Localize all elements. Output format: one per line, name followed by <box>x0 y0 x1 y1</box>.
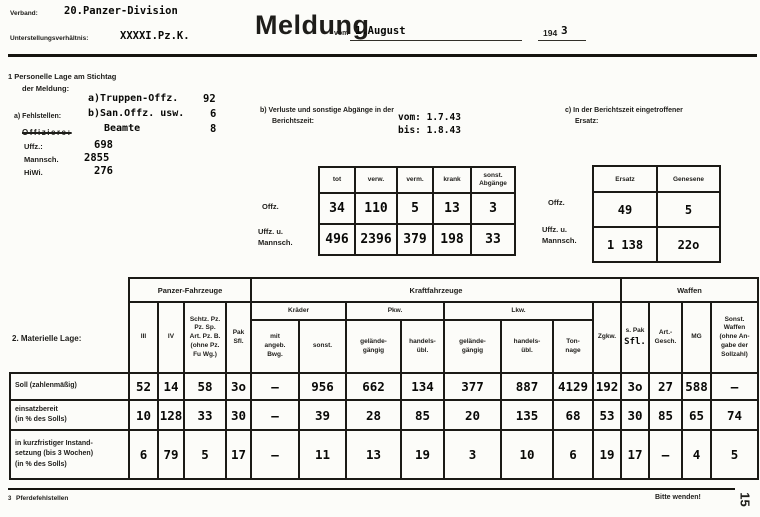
einsatz-zgkw: 53 <box>593 400 621 430</box>
entry-truppen-offz-label: a)Truppen-Offz. <box>88 93 178 104</box>
losses-offz-tot: 34 <box>319 193 355 224</box>
einsatz-sonst-waffen: 74 <box>711 400 758 430</box>
material-col-pak-sfl: Pak Sfl. <box>226 302 251 373</box>
uffz-value: 698 <box>94 139 113 151</box>
instand-kraeder-mit: – <box>251 430 299 479</box>
einsatz-lkw-han: 135 <box>501 400 553 430</box>
losses-row2-label: Uffz. u. Mannsch. <box>258 226 293 249</box>
einsatz-mg: 65 <box>682 400 711 430</box>
einsatz-art: 85 <box>649 400 682 430</box>
document-page: Verband: 20.Panzer-Division Unterstellun… <box>0 0 760 517</box>
ersatz-mannsch-ersatz: 1 138 <box>593 227 657 262</box>
ersatz-table: Ersatz Genesene 49 5 1 138 22o <box>592 165 721 263</box>
soll-kraeder-sonst: 956 <box>299 373 346 400</box>
einsatz-tonnage: 68 <box>553 400 593 430</box>
einsatz-pkw-gel: 28 <box>346 400 401 430</box>
material-row-einsatzbereit-label: einsatzbereit (in % des Solls) <box>10 400 129 430</box>
soll-tonnage: 4129 <box>553 373 593 400</box>
hiwi-label: HiWi. <box>24 168 43 177</box>
material-col-lkw-handels: handels- übl. <box>501 320 553 373</box>
losses-offz-sonst: 3 <box>471 193 515 224</box>
material-row-instandsetzung-label: in kurzfristiger Instand- setzung (bis 3… <box>10 430 129 479</box>
material-table: 2. Materielle Lage: Panzer-Fahrzeuge Kra… <box>9 277 759 480</box>
vom-label: vom <box>334 30 348 37</box>
material-col-pkw-gelaende: gelände- gängig <box>346 320 401 373</box>
losses-heading-line2: Berichtszeit: <box>272 118 314 125</box>
verband-label: Verband: <box>10 10 38 17</box>
soll-pkw-han: 134 <box>401 373 444 400</box>
instand-lkw-gel: 3 <box>444 430 501 479</box>
material-sub-pkw: Pkw. <box>346 302 444 320</box>
losses-col-tot: tot <box>319 167 355 193</box>
soll-pz4: 14 <box>158 373 184 400</box>
material-col-kraeder-mit: mit angeb. Bwg. <box>251 320 299 373</box>
losses-col-verm: verm. <box>397 167 433 193</box>
einsatz-spak: 30 <box>621 400 649 430</box>
soll-art: 27 <box>649 373 682 400</box>
mannsch-label: Mannsch. <box>24 155 59 164</box>
material-sub-lkw: Lkw. <box>444 302 593 320</box>
losses-mannsch-verm: 379 <box>397 224 433 255</box>
instand-schtz: 5 <box>184 430 226 479</box>
losses-heading-line1: b) Verluste und sonstige Abgänge in der <box>260 107 394 114</box>
ersatz-row2-label: Uffz. u. Mannsch. <box>542 224 577 247</box>
material-row-soll-label: Soll (zahlenmäßig) <box>10 373 129 400</box>
material-col-spak-typed: Sfl. <box>622 336 648 348</box>
mannsch-value: 2855 <box>84 152 109 164</box>
verband-value: 20.Panzer-Division <box>64 5 178 17</box>
material-col-kraeder-sonst: sonst. <box>299 320 346 373</box>
material-col-tonnage: Ton- nage <box>553 320 593 373</box>
material-group-panzer: Panzer-Fahrzeuge <box>129 278 251 302</box>
soll-lkw-gel: 377 <box>444 373 501 400</box>
soll-pz3: 52 <box>129 373 158 400</box>
unterstellung-value: XXXXI.Pz.K. <box>120 30 190 42</box>
entry-beamte-label: Beamte <box>104 123 140 134</box>
einsatz-pak: 30 <box>226 400 251 430</box>
instand-sonst-waffen: 5 <box>711 430 758 479</box>
instand-kraeder-sonst: 11 <box>299 430 346 479</box>
soll-schtz: 58 <box>184 373 226 400</box>
soll-kraeder-mit: – <box>251 373 299 400</box>
footnote-text: Pferdefehlstellen <box>16 495 68 502</box>
einsatz-pkw-han: 85 <box>401 400 444 430</box>
ersatz-col-genesene: Genesene <box>657 166 720 192</box>
material-col-pkw-handels: handels- übl. <box>401 320 444 373</box>
losses-bis: bis: 1.8.43 <box>398 125 461 136</box>
entry-san-offz-value: 6 <box>210 108 216 120</box>
instand-spak: 17 <box>621 430 649 479</box>
soll-lkw-han: 887 <box>501 373 553 400</box>
ersatz-mannsch-genesene: 22o <box>657 227 720 262</box>
einsatz-schtz: 33 <box>184 400 226 430</box>
instand-zgkw: 19 <box>593 430 621 479</box>
einsatz-pz3: 10 <box>129 400 158 430</box>
hiwi-value: 276 <box>94 165 113 177</box>
soll-pkw-gel: 662 <box>346 373 401 400</box>
personnel-heading-line1: 1 Personelle Lage am Stichtag <box>8 72 116 81</box>
entry-truppen-offz-value: 92 <box>203 93 216 105</box>
instand-pz4: 79 <box>158 430 184 479</box>
ersatz-col-ersatz: Ersatz <box>593 166 657 192</box>
instand-art: – <box>649 430 682 479</box>
footnote-marker: 3 <box>8 496 11 502</box>
entry-beamte-value: 8 <box>210 123 216 135</box>
ersatz-offz-genesene: 5 <box>657 192 720 227</box>
instand-tonnage: 6 <box>553 430 593 479</box>
material-col-lkw-gelaende: gelände- gängig <box>444 320 501 373</box>
losses-row1-label: Offz. <box>262 202 279 211</box>
material-col-schtz-pz: Schtz. Pz. Pz. Sp. Art. Pz. B. (ohne Pz.… <box>184 302 226 373</box>
material-section-label: 2. Materielle Lage: <box>12 334 81 343</box>
personnel-heading-line2: der Meldung: <box>22 84 69 93</box>
losses-col-krank: krank <box>433 167 471 193</box>
losses-col-verw: verw. <box>355 167 397 193</box>
material-col-spak-print: s. Pak <box>622 327 648 336</box>
material-col-pz4: IV <box>158 302 184 373</box>
uffz-label: Uffz.: <box>24 142 43 151</box>
losses-offz-krank: 13 <box>433 193 471 224</box>
einsatz-kraeder-sonst: 39 <box>299 400 346 430</box>
soll-spak: 3o <box>621 373 649 400</box>
turn-note: Bitte wenden! <box>655 494 701 501</box>
losses-mannsch-verw: 2396 <box>355 224 397 255</box>
material-corner-cell: 2. Materielle Lage: <box>10 278 129 373</box>
losses-mannsch-tot: 496 <box>319 224 355 255</box>
page-number: 15 <box>738 492 753 506</box>
losses-mannsch-krank: 198 <box>433 224 471 255</box>
material-col-art-gesch: Art.- Gesch. <box>649 302 682 373</box>
material-sub-kraeder: Kräder <box>251 302 346 320</box>
instand-pkw-han: 19 <box>401 430 444 479</box>
soll-mg: 588 <box>682 373 711 400</box>
ersatz-offz-ersatz: 49 <box>593 192 657 227</box>
instand-mg: 4 <box>682 430 711 479</box>
losses-col-sonst-abgaenge: sonst. Abgänge <box>471 167 515 193</box>
soll-sonst-waffen: – <box>711 373 758 400</box>
ersatz-row1-label: Offz. <box>548 198 565 207</box>
losses-mannsch-sonst: 33 <box>471 224 515 255</box>
header-rule <box>8 54 757 57</box>
unterstellung-label: Unterstellungsverhältnis: <box>10 35 88 42</box>
einsatz-kraeder-mit: – <box>251 400 299 430</box>
material-group-kraftfahrzeuge: Kraftfahrzeuge <box>251 278 621 302</box>
material-col-pz3: III <box>129 302 158 373</box>
instand-pak: 17 <box>226 430 251 479</box>
material-group-waffen: Waffen <box>621 278 758 302</box>
einsatz-lkw-gel: 20 <box>444 400 501 430</box>
entry-san-offz-label: b)San.Offz. usw. <box>88 108 184 119</box>
losses-offz-verm: 5 <box>397 193 433 224</box>
ersatz-heading-line1: c) In der Berichtszeit eingetroffener <box>565 107 683 114</box>
ersatz-heading-line2: Ersatz: <box>575 118 598 125</box>
material-col-sonst-waffen: Sonst. Waffen (ohne An- gabe der Sollzah… <box>711 302 758 373</box>
material-col-spak: s. Pak Sfl. <box>621 302 649 373</box>
material-col-zgkw: Zgkw. <box>593 302 621 373</box>
fehlstellen-label: a) Fehlstellen: <box>14 113 61 120</box>
einsatz-pz4: 128 <box>158 400 184 430</box>
losses-table: tot verw. verm. krank sonst. Abgänge 34 … <box>318 166 516 256</box>
soll-pak: 3o <box>226 373 251 400</box>
instand-lkw-han: 10 <box>501 430 553 479</box>
soll-zgkw: 192 <box>593 373 621 400</box>
material-col-mg: MG <box>682 302 711 373</box>
date-underline <box>350 24 522 41</box>
year-underline <box>538 24 586 41</box>
footer-rule <box>8 488 735 490</box>
instand-pz3: 6 <box>129 430 158 479</box>
losses-offz-verw: 110 <box>355 193 397 224</box>
losses-vom: vom: 1.7.43 <box>398 112 461 123</box>
struck-offiziere-label: Offiziere: <box>22 128 72 137</box>
instand-pkw-gel: 13 <box>346 430 401 479</box>
